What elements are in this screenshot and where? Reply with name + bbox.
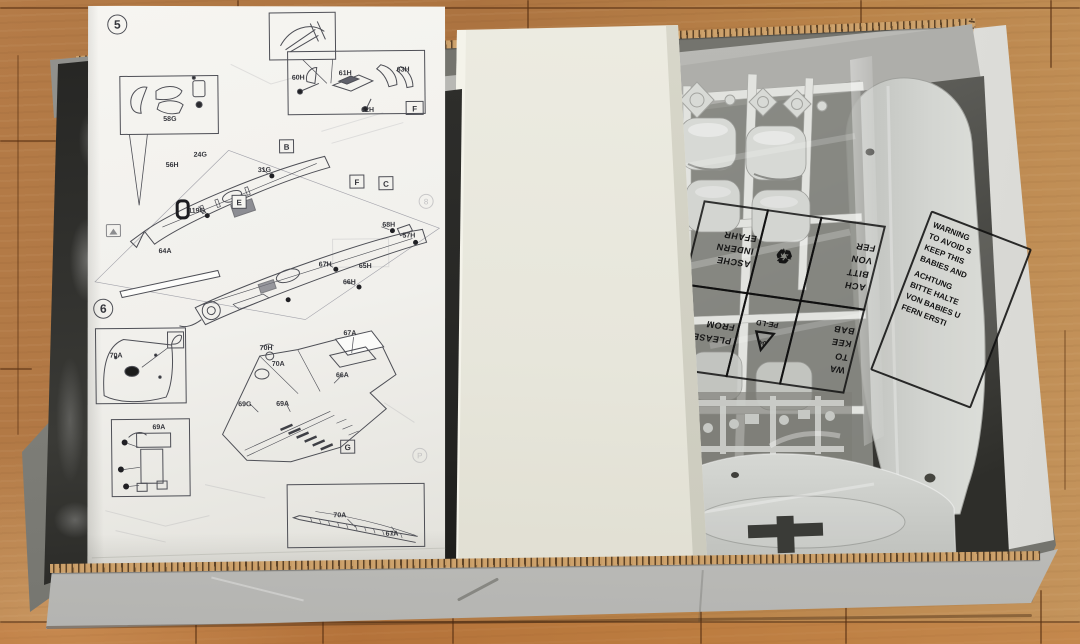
sheet-edge-shading <box>80 2 451 568</box>
floor-plank-seam <box>17 55 19 435</box>
photo-model-kit-open-box: { "instruction_sheet": { "step5": { "ste… <box>0 0 1080 644</box>
floor-plank-seam <box>1050 0 1052 68</box>
floor-plank-seam <box>1064 330 1066 490</box>
floor-plank-seam <box>0 140 56 142</box>
fuselage-hole <box>925 474 936 483</box>
recycle-circle-icon: ♻ <box>773 245 796 267</box>
floor-plank-seam <box>1040 590 1042 644</box>
instruction-sheet: 5 58G 60H 61H 63H 62H F B E F C 24G 56H … <box>80 2 451 568</box>
bag-warning-label-grid: WATO KEEBAB △ 04 PE-LD PLEASEFROM ACHBIT… <box>663 201 885 392</box>
floor-plank-seam <box>0 368 32 370</box>
